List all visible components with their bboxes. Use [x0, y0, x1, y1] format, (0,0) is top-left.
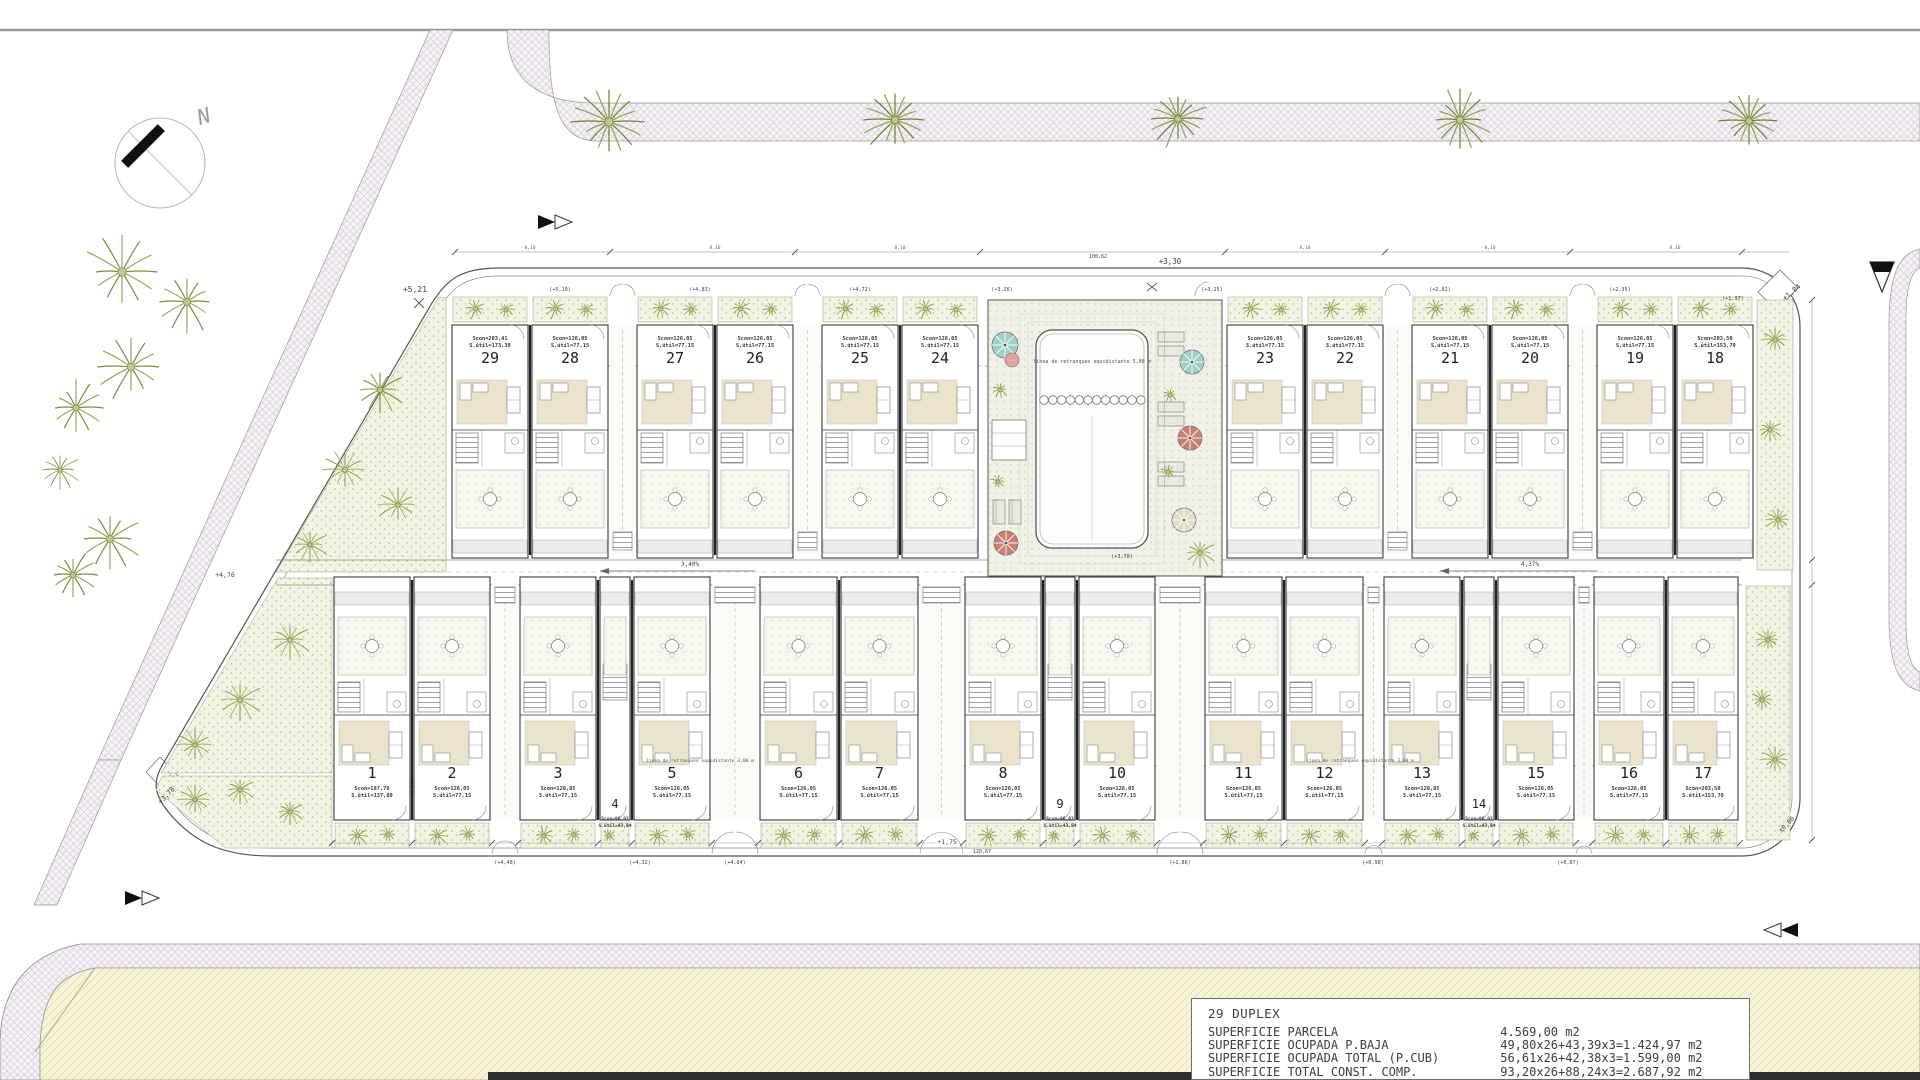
unit-area-label: S.útil=77,15 [984, 792, 1022, 799]
unit-area-label: Scon=126,05 [540, 786, 575, 792]
unit-number: 15 [1527, 764, 1545, 782]
pool-court-layer [988, 282, 1222, 576]
palm-tree-icon [54, 553, 98, 597]
legend-row: SUPERFICIE TOTAL CONST. COMP. 93,20x26+8… [1192, 1066, 1749, 1079]
slope-label-right: 4,37% [1521, 561, 1539, 568]
unit-number: 16 [1620, 764, 1638, 782]
unit-area-label: S.útil=77,15 [921, 342, 959, 349]
unit-area-label: Scon=126,05 [862, 786, 897, 792]
sun-lounger-icon [1158, 416, 1184, 426]
unit-area-label: S.útil=77,15 [1511, 342, 1549, 349]
unit-area-label: Scon=126,05 [1404, 786, 1439, 792]
unit-21-plan: Scon=126,05S.útil=77,1521 [1412, 297, 1488, 558]
gate-level-label: (+0,87) [1557, 860, 1578, 866]
dimension-text: 8,10 [1669, 245, 1680, 251]
unit-area-label: S.útil=77,15 [1517, 792, 1555, 799]
legend-box: 29 DUPLEX SUPERFICIE PARCELA 4.569,00 m2… [1191, 998, 1750, 1080]
unit-20-plan: Scon=126,05S.útil=77,1520 [1492, 297, 1568, 558]
unit-number: 27 [666, 349, 684, 367]
sun-lounger-icon [1158, 332, 1184, 342]
legend-row-value: 56,61x26+42,38x3=1.599,00 m2 [1500, 1052, 1702, 1065]
unit-number: 29 [481, 349, 499, 367]
gate-level-label: (+2,82) [1429, 287, 1450, 293]
unit-area-label: S.útil=153,70 [1682, 792, 1723, 799]
unit-17-plan: 17Scon=203,50S.útil=153,70 [1668, 577, 1738, 848]
pool-buoy-icon [1075, 396, 1084, 405]
pool-buoy-icon [1119, 396, 1128, 405]
pool-buoy-icon [1093, 396, 1102, 405]
elevation-mark: (+1,97) [1722, 296, 1744, 302]
unit-area-label: S.útil=77,15 [779, 792, 817, 799]
unit-19-plan: Scon=126,05S.útil=77,1519 [1597, 297, 1673, 558]
unit-8-plan: 8Scon=126,05S.útil=77,15 [965, 577, 1041, 848]
unit-area-label: Scon=126,05 [1247, 336, 1282, 342]
unit-5-plan: 5Scon=126,05S.útil=77,15 [634, 577, 710, 848]
unit-area-label: Scon=126,05 [1617, 336, 1652, 342]
legend-row-label: SUPERFICIE OCUPADA TOTAL (P.CUB) [1208, 1052, 1493, 1065]
gate-level-label: (+2,35) [1609, 287, 1630, 293]
gate-level-label: (+5,10) [549, 287, 570, 293]
unit-number: 5 [667, 764, 676, 782]
palm-tree-icon [159, 278, 209, 333]
sun-lounger-icon [1158, 402, 1184, 412]
unit-number: 21 [1441, 349, 1459, 367]
unit-area-label: Scon=203,41 [472, 336, 507, 342]
unit-11-plan: 11Scon=126,05S.útil=77,15 [1205, 577, 1282, 848]
unit-24-plan: Scon=126,05S.útil=77,1524 [902, 297, 978, 558]
unit-23-plan: Scon=126,05S.útil=77,1523 [1227, 297, 1303, 558]
site-plan-canvas: Scon=203,41S.útil=173,3929Scon=126,05S.ú… [0, 0, 1920, 1080]
elevation-mark: 120,67 [973, 849, 991, 855]
unit-28-plan: Scon=126,05S.útil=77,1528 [532, 297, 608, 558]
unit-area-label: Scon=126,05 [1432, 336, 1467, 342]
unit-area-label: Scon=126,05 [1307, 786, 1342, 792]
legend-row-value: 93,20x26+88,24x3=2.687,92 m2 [1500, 1066, 1702, 1079]
unit-number: 13 [1413, 764, 1431, 782]
pool-buoy-icon [1057, 396, 1066, 405]
unit-area-label: S.útil=77,15 [1098, 792, 1136, 799]
adjacent-parcel-edge [1889, 249, 1920, 691]
unit-number: 26 [746, 349, 764, 367]
dimension-text: 8,10 [894, 245, 905, 251]
unit-area-label: S.útil=77,15 [1305, 792, 1343, 799]
unit-number: 19 [1626, 349, 1644, 367]
unit-18-plan: Scon=203,50S.útil=153,7018 [1677, 297, 1753, 558]
sun-lounger-icon [993, 500, 1005, 524]
palm-tree-icon [97, 338, 159, 399]
sun-lounger-icon [1158, 462, 1184, 472]
unit-area-label: S.útil=77,15 [841, 342, 879, 349]
unit-area-label: S.útil=77,15 [1403, 792, 1441, 799]
unit-area-label: S.útil=43,84 [1043, 822, 1076, 829]
unit-25-plan: Scon=126,05S.útil=77,1525 [822, 297, 898, 558]
unit-area-label: Scon=126,05 [434, 786, 469, 792]
unit-15-plan: 15Scon=126,05S.útil=77,15 [1498, 577, 1574, 848]
dimension-text: 8,10 [524, 245, 535, 251]
unit-area-label: Scon=126,05 [1226, 786, 1261, 792]
palm-tree-icon [87, 235, 158, 303]
pool-buoy-icon [1137, 396, 1146, 405]
unit-area-label: Scon=126,05 [1512, 336, 1547, 342]
site-plan-drawing: Scon=203,41S.útil=173,3929Scon=126,05S.ú… [0, 0, 1920, 1080]
unit-area-label: Scon=126,05 [922, 336, 957, 342]
unit-area-label: S.útil=43,84 [598, 822, 631, 829]
unit-area-label: Scon=126,05 [657, 336, 692, 342]
unit-area-label: S.útil=137,80 [351, 792, 392, 799]
sun-lounger-icon [1009, 500, 1021, 524]
unit-area-label: Scon=126,05 [1327, 336, 1362, 342]
legend-title: 29 DUPLEX [1192, 999, 1749, 1026]
unit-number: 11 [1234, 764, 1252, 782]
elevation-mark: 100,62 [1089, 254, 1107, 260]
unit-number: 20 [1521, 349, 1539, 367]
elevation-mark: +5,21 [403, 285, 427, 294]
unit-4-plan: 4Scon=86,03S.útil=43,84 [598, 577, 631, 848]
unit-number: 2 [447, 764, 456, 782]
unit-area-label: S.útil=77,15 [1616, 342, 1654, 349]
unit-area-label: S.útil=173,39 [469, 342, 510, 349]
unit-29-plan: Scon=203,41S.útil=173,3929 [452, 297, 528, 558]
section-marker-icon [538, 215, 572, 229]
pool-setback-note: línea de retranqueo equidistante 5,00 m [1033, 358, 1150, 365]
unit-22-plan: Scon=126,05S.útil=77,1522 [1307, 297, 1383, 558]
unit-14-plan: 14Scon=86,03S.útil=43,84 [1462, 577, 1495, 848]
elevation-mark: (+3,70) [1111, 554, 1133, 560]
unit-area-label: S.útil=77,15 [860, 792, 898, 799]
sun-lounger-icon [1158, 346, 1184, 356]
unit-number: 23 [1256, 349, 1274, 367]
unit-area-label: Scon=126,05 [737, 336, 772, 342]
dimension-text: 8,10 [1484, 245, 1495, 251]
pool-buoy-icon [1110, 396, 1119, 405]
section-marker-icon [125, 891, 159, 905]
section-marker-icon [1764, 923, 1798, 937]
unit-13-plan: 13Scon=126,05S.útil=77,15 [1384, 577, 1460, 848]
parasol-icon [994, 531, 1018, 555]
gate-level-label: (+3,26) [991, 287, 1012, 293]
unit-number: 8 [998, 764, 1007, 782]
unit-number: 12 [1315, 764, 1333, 782]
unit-12-plan: 12Scon=126,05S.útil=77,15 [1286, 577, 1363, 848]
gate-level-label: (+0,98) [1362, 860, 1383, 866]
unit-area-label: S.útil=77,15 [551, 342, 589, 349]
legend-row: SUPERFICIE OCUPADA TOTAL (P.CUB) 56,61x2… [1192, 1052, 1749, 1065]
gate-level-label: (+3,15) [1201, 287, 1222, 293]
unit-6-plan: 6Scon=126,05S.útil=77,15 [760, 577, 837, 848]
unit-27-plan: Scon=126,05S.útil=77,1527 [637, 297, 713, 558]
unit-area-label: Scon=126,05 [1518, 786, 1553, 792]
unit-area-label: S.útil=77,15 [1246, 342, 1284, 349]
unit-number: 4 [611, 797, 618, 811]
unit-area-label: S.útil=77,15 [1326, 342, 1364, 349]
unit-area-label: Scon=203,50 [1685, 786, 1720, 792]
unit-26-plan: Scon=126,05S.útil=77,1526 [717, 297, 793, 558]
unit-area-label: S.útil=77,15 [1224, 792, 1262, 799]
palm-tree-icon [43, 456, 78, 490]
gate-level-label: (+4,83) [689, 287, 710, 293]
north-label: N [193, 103, 214, 130]
pool-buoy-icon [1101, 396, 1110, 405]
row-setback-note-right: línea de retranqueo equidistante 3,00 m [1306, 757, 1414, 764]
unit-area-label: Scon=203,50 [1697, 336, 1732, 342]
gate-level-label: (+4,72) [849, 287, 870, 293]
pool-buoy-icon [1084, 396, 1093, 405]
unit-area-label: Scon=126,05 [985, 786, 1020, 792]
unit-2-plan: 2Scon=126,05S.útil=77,15 [414, 577, 490, 848]
unit-number: 9 [1056, 797, 1063, 811]
unit-number: 7 [875, 764, 884, 782]
elevation-mark: +1,75 [937, 838, 957, 846]
unit-number: 3 [553, 764, 562, 782]
garden-area [1746, 586, 1790, 840]
unit-9-plan: 9Scon=86,03S.útil=43,84 [1043, 577, 1076, 848]
north-arrow-icon [115, 118, 205, 208]
unit-area-label: Scon=126,05 [552, 336, 587, 342]
pool-buoy-icon [1066, 396, 1075, 405]
palm-tree-icon [84, 517, 139, 569]
unit-number: 28 [561, 349, 579, 367]
unit-1-plan: 1Scon=187,76S.útil=137,80 [334, 577, 410, 848]
gate-level-label: (+1,86) [1169, 860, 1190, 866]
unit-number: 17 [1694, 764, 1712, 782]
unit-area-label: Scon=126,05 [1099, 786, 1134, 792]
pool-buoy-icon [1128, 396, 1137, 405]
unit-number: 18 [1706, 349, 1724, 367]
top-road [507, 30, 1920, 141]
unit-area-label: Scon=126,05 [654, 786, 689, 792]
unit-area-label: Scon=86,03 [601, 816, 629, 822]
unit-number: 24 [931, 349, 949, 367]
pool-buoy-icon [1049, 396, 1058, 405]
unit-area-label: Scon=86,03 [1465, 816, 1493, 822]
unit-area-label: S.útil=43,84 [1462, 822, 1495, 829]
unit-area-label: S.útil=77,15 [653, 792, 691, 799]
unit-number: 14 [1472, 797, 1486, 811]
unit-7-plan: 7Scon=126,05S.útil=77,15 [841, 577, 918, 848]
elevation-mark: +4,76 [215, 571, 235, 579]
unit-area-label: S.útil=77,15 [1431, 342, 1469, 349]
slope-label-left: 3,40% [681, 561, 699, 568]
unit-number: 1 [367, 764, 376, 782]
unit-3-plan: 3Scon=126,05S.útil=77,15 [520, 577, 596, 848]
unit-area-label: Scon=126,05 [1611, 786, 1646, 792]
unit-area-label: S.útil=77,15 [1610, 792, 1648, 799]
unit-area-label: Scon=126,05 [842, 336, 877, 342]
gate-level-label: (+4,48) [494, 860, 515, 866]
unit-10-plan: 10Scon=126,05S.útil=77,15 [1079, 577, 1155, 848]
unit-area-label: S.útil=77,15 [656, 342, 694, 349]
parasol-icon [1180, 350, 1204, 374]
pool-buoy-icon [1040, 396, 1049, 405]
sun-lounger-icon [1158, 476, 1184, 486]
unit-area-label: S.útil=153,70 [1694, 342, 1735, 349]
unit-area-label: S.útil=77,15 [539, 792, 577, 799]
unit-number: 10 [1108, 764, 1126, 782]
unit-area-label: Scon=187,76 [354, 786, 389, 792]
gate-level-label: (+4,04) [724, 860, 745, 866]
section-marker-icon [1870, 262, 1894, 292]
unit-area-label: S.útil=77,15 [433, 792, 471, 799]
parasol-icon [1172, 508, 1196, 532]
unit-area-label: Scon=126,05 [781, 786, 816, 792]
parasol-icon [1178, 426, 1202, 450]
row-setback-note-left: línea de retranqueo equidistante 3,00 m [646, 757, 754, 764]
unit-number: 6 [794, 764, 803, 782]
dimension-text: 8,10 [709, 245, 720, 251]
dimension-text: 8,10 [1299, 245, 1310, 251]
unit-number: 22 [1336, 349, 1354, 367]
elevation-mark: +3,30 [1159, 257, 1182, 266]
unit-area-label: S.útil=77,15 [736, 342, 774, 349]
unit-area-label: Scon=86,03 [1046, 816, 1074, 822]
unit-16-plan: 16Scon=126,05S.útil=77,15 [1594, 577, 1664, 848]
legend-row-label: SUPERFICIE TOTAL CONST. COMP. [1208, 1066, 1493, 1079]
unit-number: 25 [851, 349, 869, 367]
palm-tree-icon [55, 379, 104, 432]
gate-level-label: (+4,32) [629, 860, 650, 866]
